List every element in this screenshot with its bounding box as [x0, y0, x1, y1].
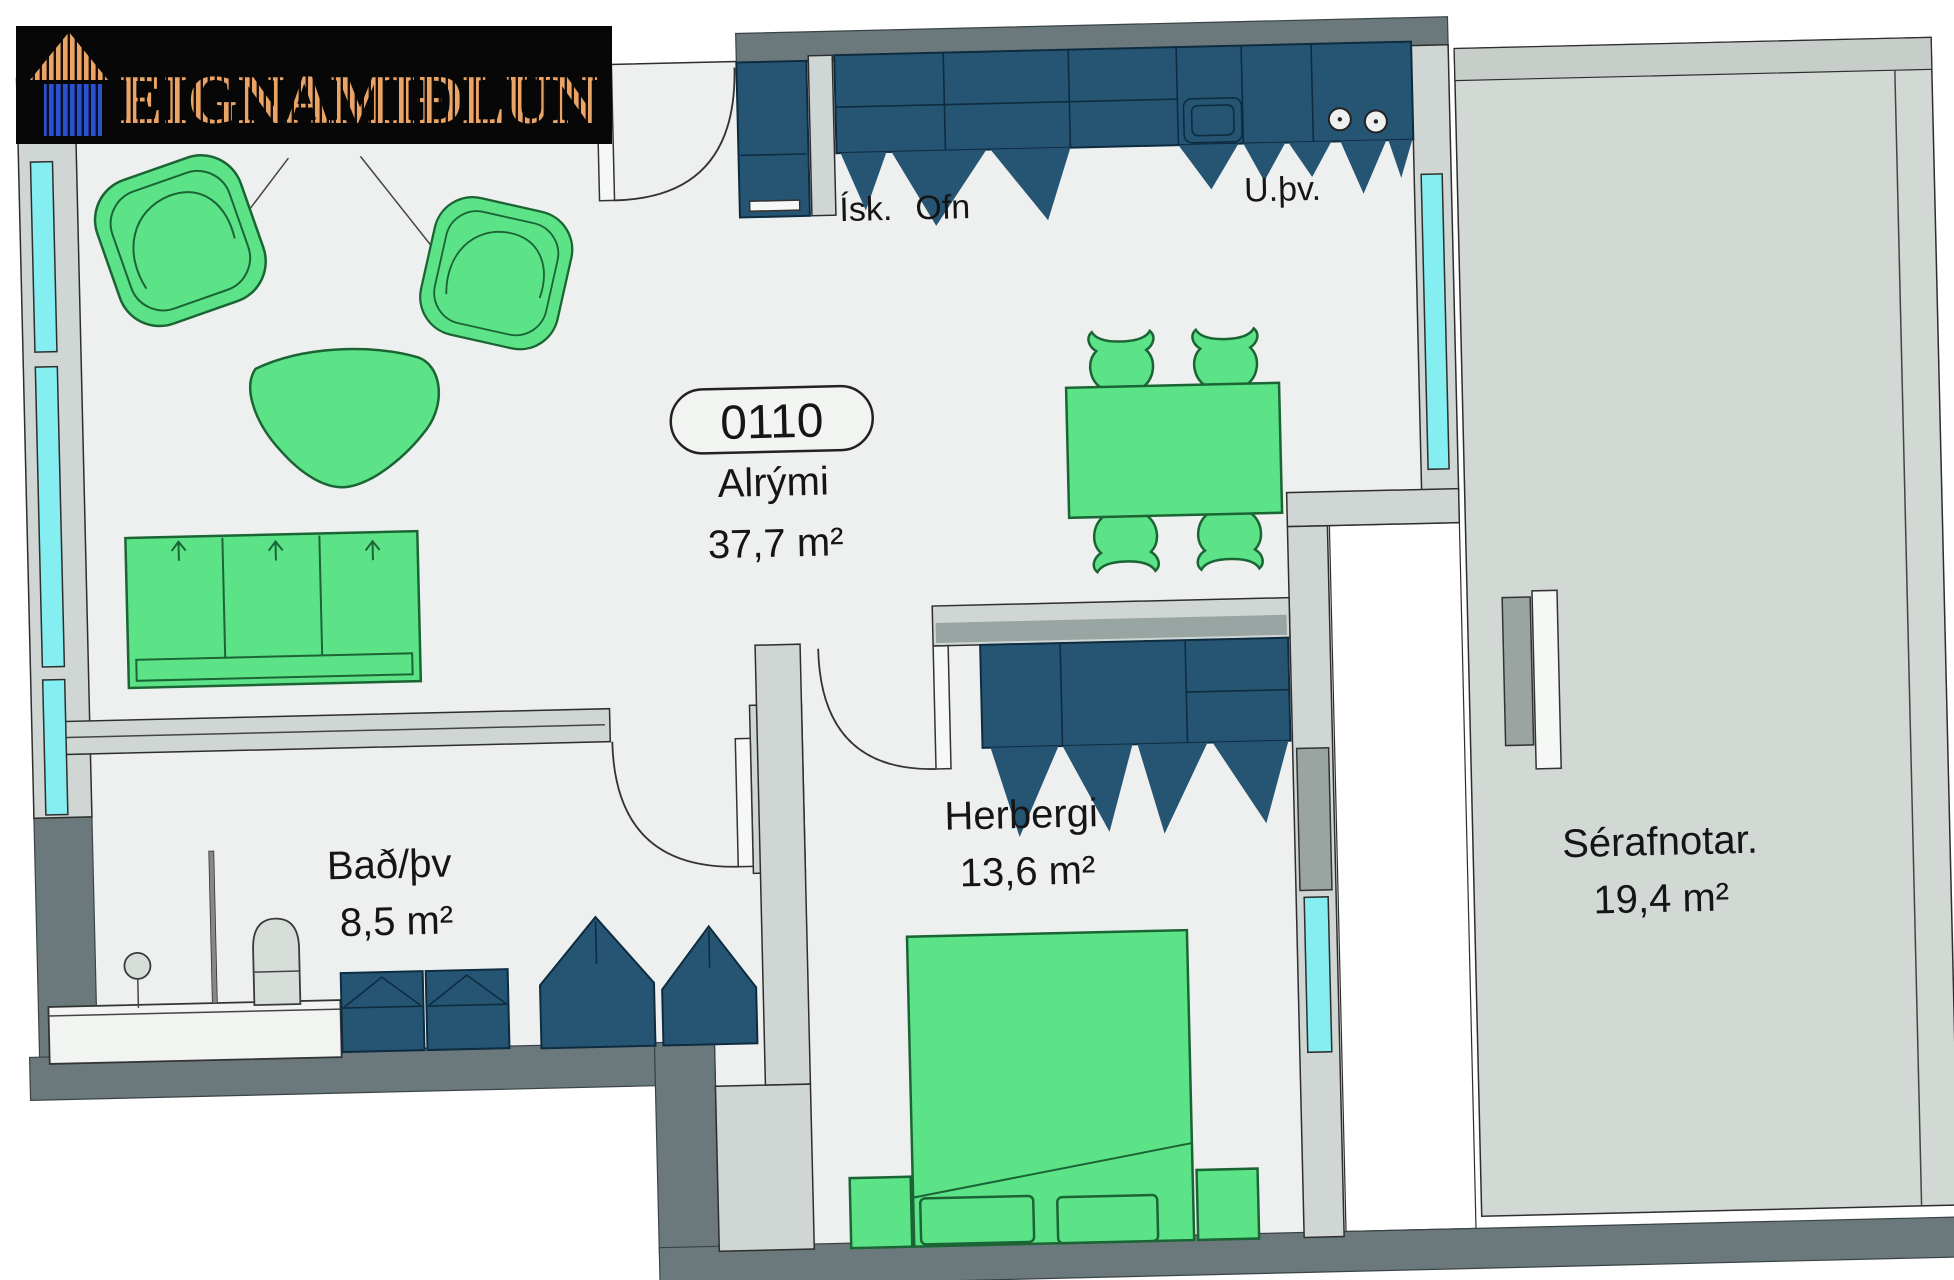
logo-text: EIGNAMIÐLUN [120, 62, 598, 139]
label-alrymi-name: Alrými [717, 459, 829, 506]
kitchen-cabinet-run [834, 42, 1413, 154]
logo: EIGNAMIÐLUN [16, 26, 612, 144]
window-bedroom [1304, 897, 1332, 1053]
label-herbergi-name: Herbergi [944, 791, 1098, 839]
label-oven: Ofn [915, 188, 971, 227]
label-serafnotar-area: 19,4 m² [1593, 875, 1730, 922]
label-fridge: Ísk. [839, 190, 893, 229]
sofa [125, 531, 420, 688]
label-herbergi-area: 13,6 m² [959, 848, 1096, 895]
nightstand-right [1197, 1169, 1260, 1240]
window-left-3 [43, 680, 68, 815]
bathroom-door-leaf [735, 738, 753, 866]
floor-plan-page: 0110 Alrými 37,7 m² Herbergi 13,6 m² Bað… [0, 0, 1954, 1280]
unit-number: 0110 [720, 395, 824, 450]
label-bad-name: Bað/þv [326, 841, 452, 888]
window-left-1 [30, 162, 56, 352]
bed [907, 930, 1194, 1247]
dining-table [1066, 383, 1282, 518]
label-dishwasher: U.þv. [1244, 170, 1322, 210]
floor-plan-canvas: 0110 Alrými 37,7 m² Herbergi 13,6 m² Bað… [0, 0, 1954, 1280]
exterior-notch [1329, 523, 1476, 1232]
tall-unit-fridge-oven [736, 61, 810, 218]
pillow [920, 1196, 1034, 1245]
bedroom-terrace-door-leaf [1297, 748, 1332, 891]
label-alrymi-area: 37,7 m² [707, 520, 844, 567]
toilet [252, 918, 300, 1005]
nightstand-left [850, 1177, 913, 1248]
pillow [1057, 1195, 1158, 1243]
label-bad-area: 8,5 m² [339, 898, 453, 945]
kitchen-pilaster [808, 55, 836, 216]
terrace-access-door-leaf [1502, 597, 1533, 746]
bedroom-door-leaf [933, 646, 951, 769]
terrace-access-door-jamb [1532, 590, 1561, 769]
bath-sink [124, 953, 151, 980]
label-serafnotar-name: Sérafnotar. [1562, 818, 1759, 867]
plan-rotated-group: 0110 Alrými 37,7 m² Herbergi 13,6 m² Bað… [6, 5, 1954, 1280]
